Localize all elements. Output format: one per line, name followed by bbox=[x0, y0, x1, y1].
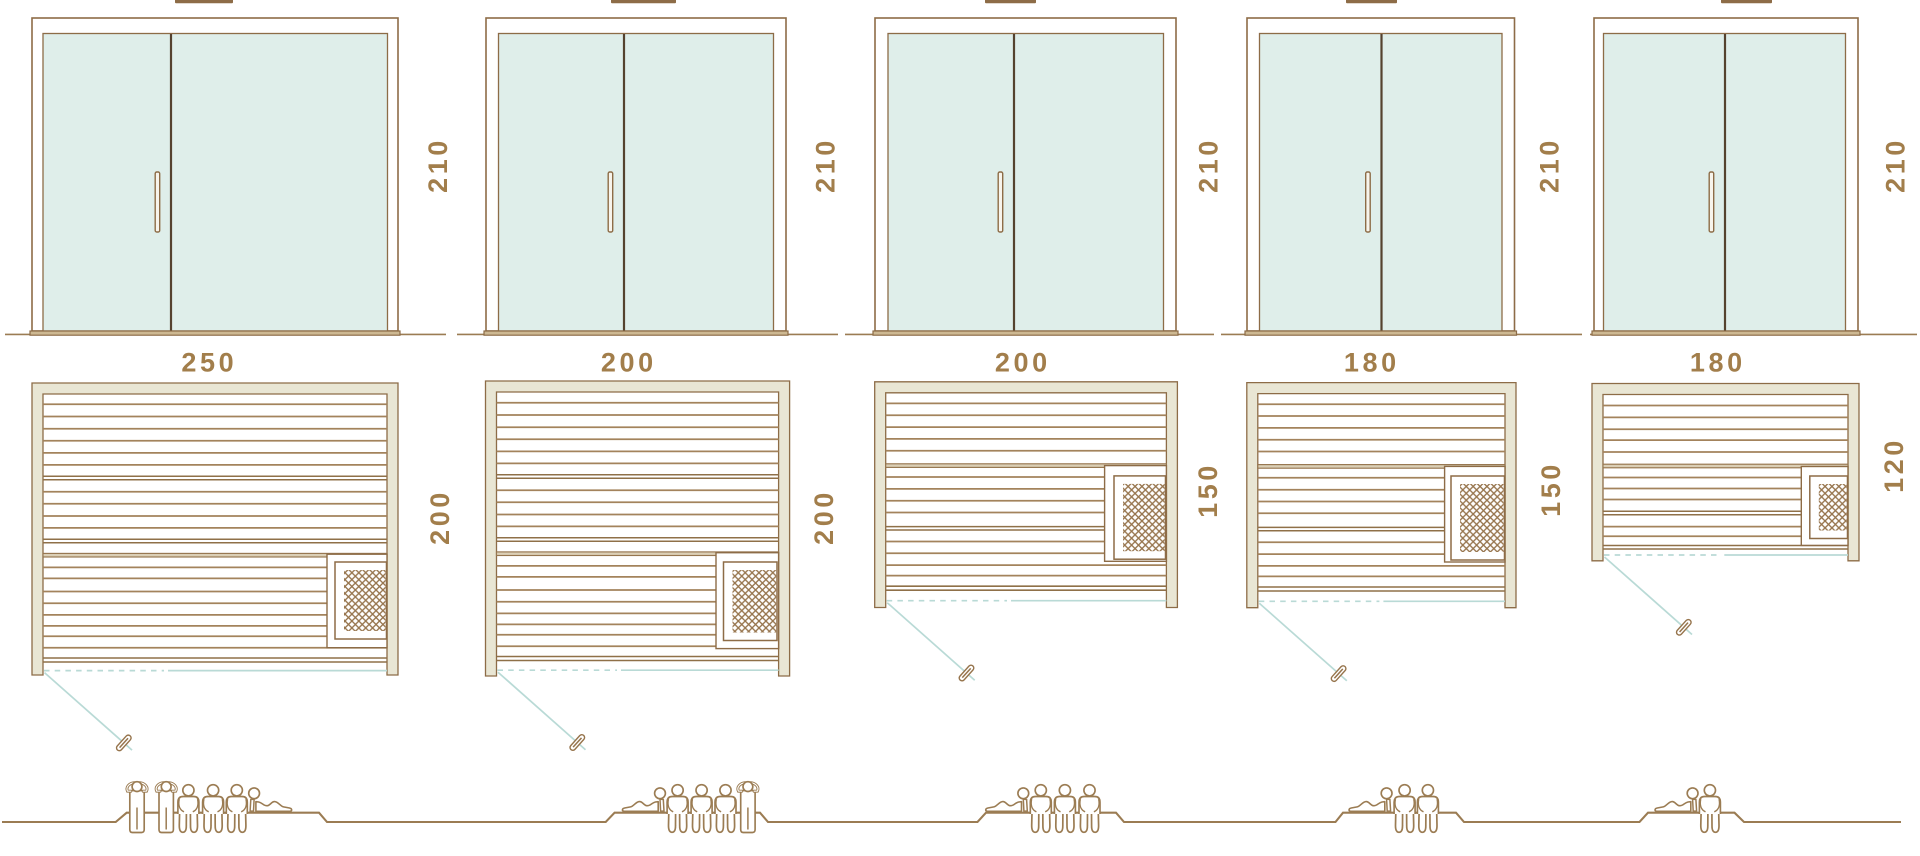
svg-text:180: 180 bbox=[1690, 348, 1746, 378]
svg-text:210: 210 bbox=[423, 137, 453, 193]
svg-text:210: 210 bbox=[811, 137, 841, 193]
svg-text:180: 180 bbox=[1344, 348, 1400, 378]
svg-text:120: 120 bbox=[1879, 437, 1909, 493]
svg-text:150: 150 bbox=[1193, 462, 1223, 518]
svg-text:150: 150 bbox=[1536, 461, 1566, 517]
svg-text:200: 200 bbox=[425, 489, 455, 545]
svg-text:200: 200 bbox=[601, 348, 657, 378]
svg-text:200: 200 bbox=[995, 348, 1051, 378]
svg-text:210: 210 bbox=[1535, 137, 1565, 193]
svg-text:250: 250 bbox=[181, 348, 237, 378]
svg-text:210: 210 bbox=[1881, 137, 1911, 193]
svg-text:200: 200 bbox=[809, 489, 839, 545]
svg-text:210: 210 bbox=[1194, 137, 1224, 193]
